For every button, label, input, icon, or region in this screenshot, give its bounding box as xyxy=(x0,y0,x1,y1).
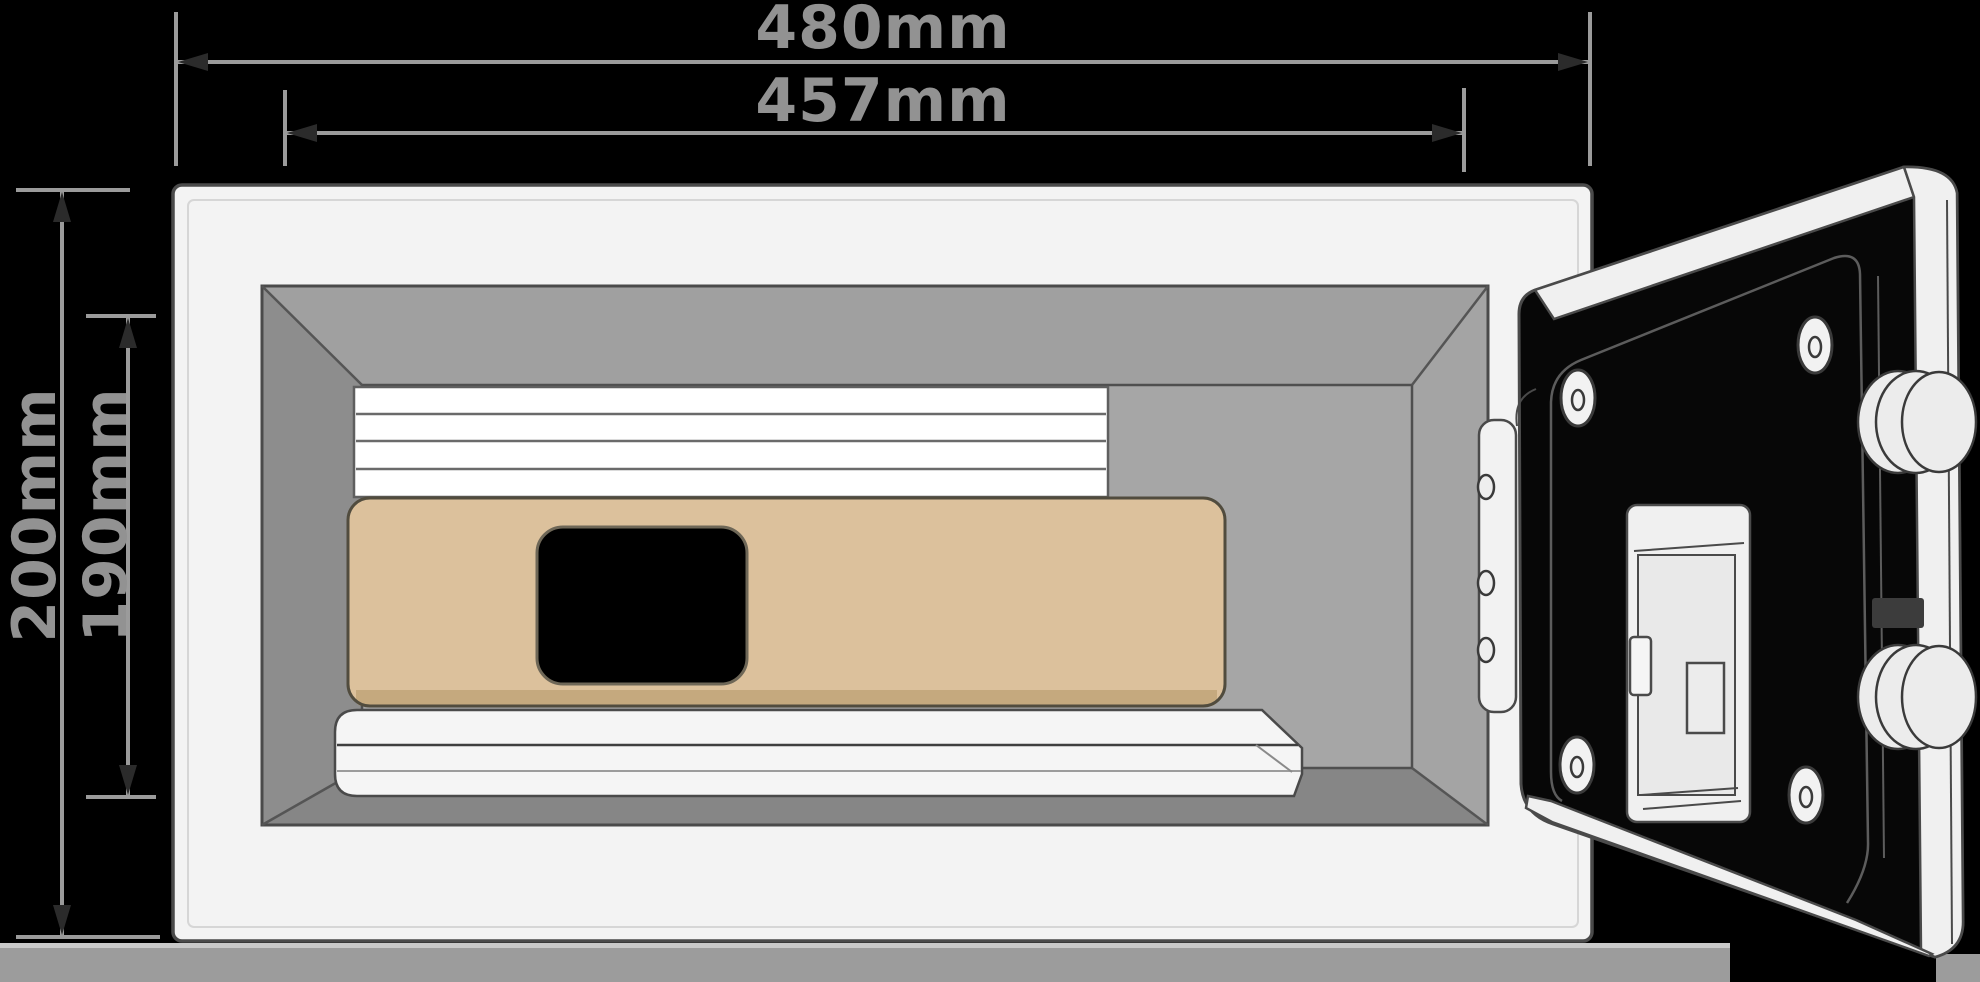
laptop-handle-hole xyxy=(537,527,747,684)
floor-right-fragment xyxy=(1936,954,1980,982)
arrow-down-icon xyxy=(119,765,137,795)
floor-bar xyxy=(0,943,1730,982)
bolt-front xyxy=(1902,646,1976,748)
keypad-panel xyxy=(1627,505,1750,822)
lock-bolt-top xyxy=(1858,371,1976,473)
arrow-up-icon xyxy=(53,192,71,222)
lower-shelf xyxy=(335,710,1302,796)
laptop-front-edge xyxy=(356,690,1217,706)
arrow-down-icon xyxy=(53,905,71,935)
laptop-body xyxy=(348,498,1225,706)
shelf-board xyxy=(335,710,1302,796)
bolt-front xyxy=(1902,372,1976,472)
dimension-inner-height: 190mm xyxy=(71,316,156,797)
door-screw xyxy=(1560,737,1594,793)
floor xyxy=(0,943,1980,982)
arrow-left-icon xyxy=(287,124,317,142)
dimension-inner-width: 457mm xyxy=(285,66,1464,172)
arrow-right-icon xyxy=(1432,124,1462,142)
safe-body xyxy=(173,185,1592,941)
keypad-slot xyxy=(1630,637,1651,695)
inner-height-label: 190mm xyxy=(71,387,141,642)
keypad-screen xyxy=(1687,663,1724,733)
arrow-up-icon xyxy=(119,318,137,348)
hinge-pin xyxy=(1478,475,1494,499)
arrow-left-icon xyxy=(178,53,208,71)
hinge-pin xyxy=(1478,638,1494,662)
diagram-canvas: 480mm 457mm 200mm 190mm xyxy=(0,0,1980,982)
latch-slot xyxy=(1872,598,1924,628)
arrow-right-icon xyxy=(1558,53,1588,71)
inner-width-label: 457mm xyxy=(755,66,1010,136)
hinge-plate xyxy=(1479,420,1516,712)
door-screw xyxy=(1798,317,1832,373)
interior-top-wall xyxy=(262,286,1488,385)
floor-highlight xyxy=(0,943,1730,948)
door-screw xyxy=(1561,370,1595,426)
paper-stack xyxy=(354,387,1108,497)
lock-bolt-bottom xyxy=(1858,645,1976,749)
hinge-pin xyxy=(1478,571,1494,595)
outer-width-label: 480mm xyxy=(755,0,1010,63)
door-screw xyxy=(1789,767,1823,823)
laptop xyxy=(348,498,1225,706)
outer-height-label: 200mm xyxy=(0,387,70,642)
safe-dimension-diagram: 480mm 457mm 200mm 190mm xyxy=(0,0,1980,982)
